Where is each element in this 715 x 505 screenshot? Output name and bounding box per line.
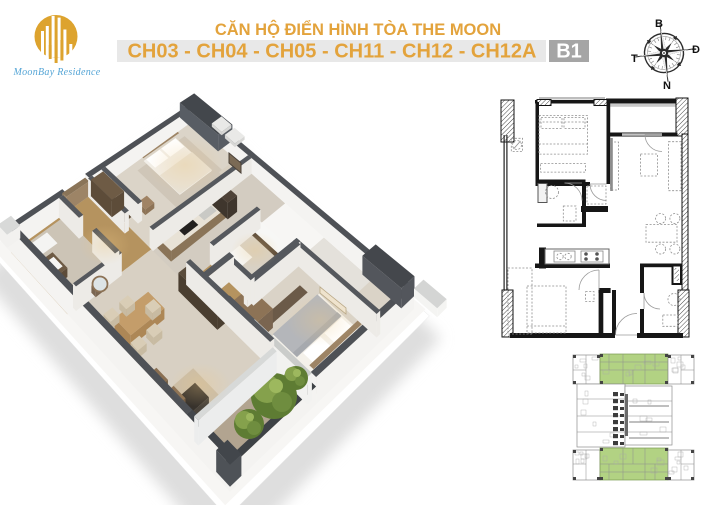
svg-text:B1: B1 — [556, 41, 582, 63]
svg-text:CH03 - CH04 - CH05 - CH11 - CH: CH03 - CH04 - CH05 - CH11 - CH12 - CH12A — [127, 41, 536, 63]
svg-text:MoonBay Residence: MoonBay Residence — [12, 67, 100, 78]
svg-text:B: B — [655, 18, 663, 30]
svg-text:N: N — [663, 80, 671, 92]
svg-text:CĂN HỘ ĐIỂN HÌNH TÒA THE MOON: CĂN HỘ ĐIỂN HÌNH TÒA THE MOON — [215, 20, 501, 39]
svg-text:T: T — [631, 53, 638, 65]
svg-text:Đ: Đ — [692, 44, 700, 56]
